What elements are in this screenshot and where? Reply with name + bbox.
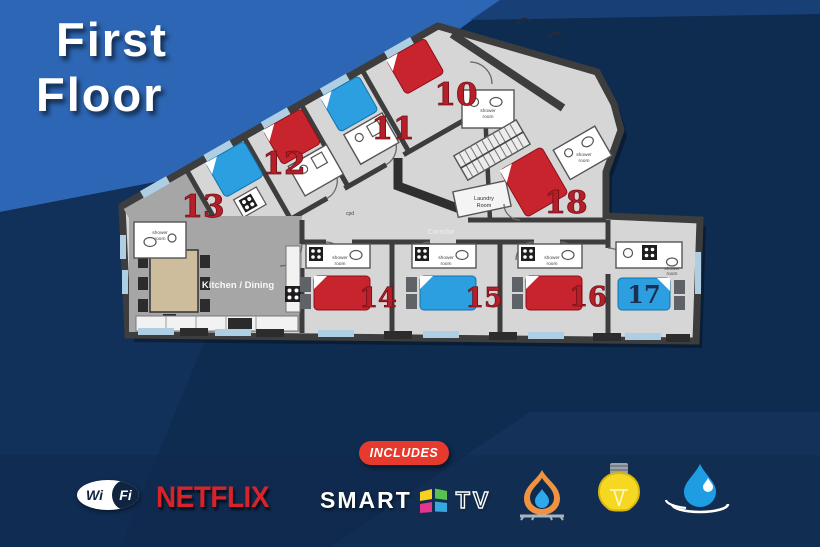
svg-text:shower: shower [544, 255, 560, 261]
svg-text:shower: shower [152, 230, 168, 236]
svg-text:room: room [335, 261, 346, 267]
svg-text:Room: Room [477, 203, 492, 209]
kitchen-counter-side [286, 246, 300, 312]
room-15-number: 15 [465, 283, 503, 314]
kitchen-label: Kitchen / Dining [202, 280, 275, 291]
laundry-room-label: Laundry [474, 196, 494, 202]
room-14-number: 14 [359, 283, 397, 314]
room-10-number: 10 [434, 77, 477, 113]
svg-text:room: room [483, 114, 494, 120]
room-16-number: 16 [569, 282, 607, 313]
room-18-number: 18 [544, 185, 587, 221]
smart-tv-tv-text: TV [456, 487, 491, 514]
room-13-number: 13 [181, 189, 224, 225]
svg-text:room: room [667, 271, 678, 277]
room-12-number: 12 [262, 146, 305, 182]
svg-text:room: room [579, 158, 590, 164]
svg-text:shower: shower [480, 108, 496, 114]
dining-table [150, 250, 198, 312]
shower-pod [616, 242, 682, 268]
svg-text:shower: shower [438, 255, 454, 261]
smart-tv-logo: SMART TV [320, 486, 491, 514]
netflix-logo-text: NETFLIX [156, 481, 269, 515]
corridor-label: Corridor [427, 227, 455, 236]
svg-text:shower: shower [332, 255, 348, 261]
room-17-number: 17 [627, 280, 660, 309]
netflix-logo: NETFLIX [156, 481, 269, 515]
wifi-logo-left: Wi [77, 487, 112, 503]
svg-text:room: room [155, 236, 166, 242]
title-line-1: First [36, 12, 168, 67]
page-title: First Floor [36, 12, 168, 123]
kitchen-stove [285, 286, 301, 302]
svg-text:room: room [441, 261, 452, 267]
wifi-logo: Wi Fi [77, 480, 139, 510]
cupboard-label: cpd [346, 211, 354, 217]
kitchen-appliance [228, 318, 252, 329]
first-floor-plan-image: Laundry Room [0, 0, 820, 547]
smart-tv-tiles-icon [418, 486, 450, 514]
room-11-number: 11 [371, 111, 414, 147]
includes-badge: INCLUDES [359, 441, 449, 465]
svg-text:room: room [547, 261, 558, 267]
includes-badge-label: INCLUDES [370, 446, 439, 460]
svg-text:shower: shower [576, 152, 592, 158]
title-line-2: Floor [36, 67, 168, 122]
smart-tv-text: SMART [320, 487, 412, 514]
